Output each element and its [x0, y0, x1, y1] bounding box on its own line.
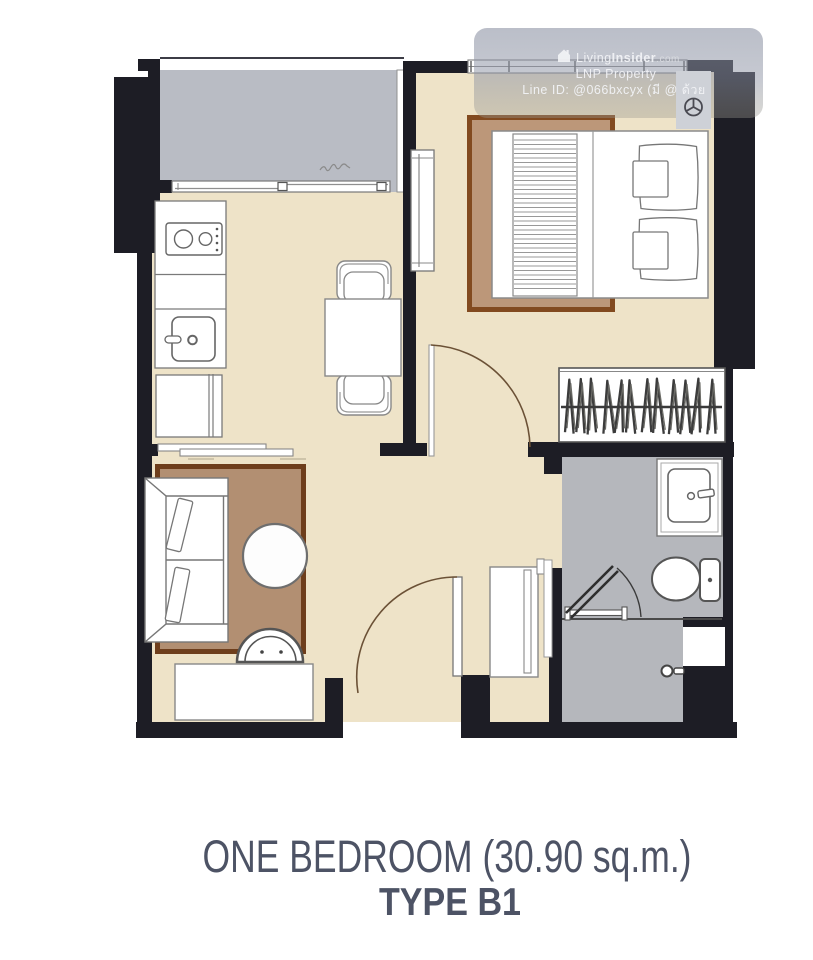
- svg-text:TYPE B1: TYPE B1: [379, 881, 521, 924]
- svg-text:LNP Property: LNP Property: [576, 67, 657, 81]
- svg-text:LivingInsider.com: LivingInsider.com: [576, 51, 680, 65]
- svg-text:ONE BEDROOM (30.90 sq.m.): ONE BEDROOM (30.90 sq.m.): [203, 831, 692, 882]
- svg-text:Line ID: @066bxcyx (มี @ ด้วย: Line ID: @066bxcyx (มี @ ด้วย: [522, 83, 706, 97]
